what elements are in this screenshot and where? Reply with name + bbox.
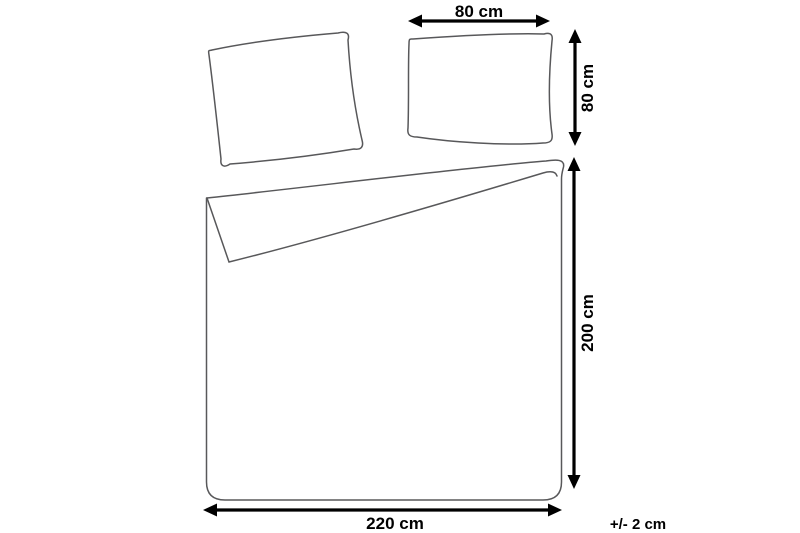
dim-duvet-width: 220 cm [203,504,562,533]
left-pillowcase-outline [209,32,363,166]
pillow-width-label: 80 cm [455,2,503,21]
arrowhead-down-icon [568,475,581,489]
tolerance-label: +/- 2 cm [610,516,666,533]
arrowhead-up-icon [568,157,581,171]
diagram-svg: 80 cm 80 cm 200 cm 220 cm +/- 2 cm [0,0,800,533]
right-pillowcase-outline [408,33,552,144]
arrowhead-up-icon [569,29,582,43]
dim-pillow-width: 80 cm [408,2,550,28]
bedding-dimensions-diagram: 80 cm 80 cm 200 cm 220 cm +/- 2 cm [0,0,800,533]
duvet-height-label: 200 cm [578,294,597,352]
dim-duvet-height: 200 cm [568,157,598,489]
arrowhead-down-icon [569,132,582,146]
duvet-cover-outline [207,160,564,500]
arrowhead-right-icon [548,504,562,517]
pillow-height-label: 80 cm [578,64,597,112]
arrowhead-left-icon [203,504,217,517]
dim-pillow-height: 80 cm [569,29,598,146]
duvet-width-label: 220 cm [366,514,424,533]
arrowhead-left-icon [408,15,422,28]
arrowhead-right-icon [536,15,550,28]
